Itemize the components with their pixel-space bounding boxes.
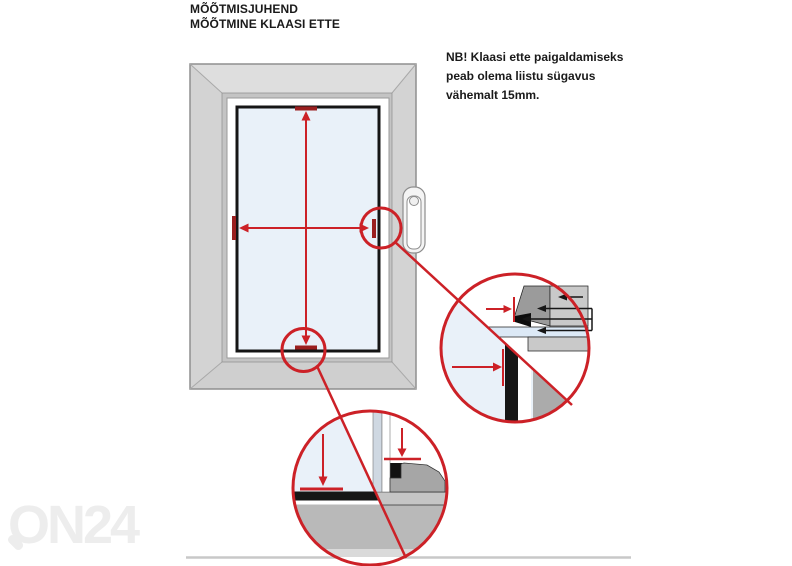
handle-pivot: [410, 197, 419, 206]
note-line-1: NB! Klaasi ette paigaldamiseks: [446, 48, 623, 67]
left-measure-tick: [232, 216, 236, 240]
title-line-1: MÕÕTMISJUHEND: [190, 2, 340, 17]
window-frame: [190, 64, 416, 389]
page-title: MÕÕTMISJUHEND MÕÕTMINE KLAASI ETTE: [190, 2, 340, 32]
frame-face-top: [190, 64, 416, 93]
sill-light-strip: [292, 549, 450, 557]
measurement-diagram: [0, 0, 792, 566]
seal-block: [390, 463, 402, 478]
glass-pane-outer: [373, 410, 382, 492]
note-line-2: peab olema liistu sügavus: [446, 67, 623, 86]
detail-view-bottom: [288, 366, 450, 565]
title-line-2: MÕÕTMINE KLAASI ETTE: [190, 17, 340, 32]
glass-pane-section: [488, 327, 588, 337]
bottom-measure-tick: [295, 346, 317, 350]
note-line-3: vähemalt 15mm.: [446, 86, 623, 105]
glass-pane-inner: [382, 410, 390, 492]
frame-face-left: [190, 64, 222, 389]
sash-section: [528, 337, 588, 351]
note-text: NB! Klaasi ette paigaldamiseks peab olem…: [446, 48, 623, 105]
right-measure-tick: [372, 219, 376, 238]
instruction-image: ON24 MÕÕTMISJUHEND MÕÕTMINE KLAASI ETTE …: [0, 0, 792, 566]
window-handle: [403, 187, 425, 253]
frame-face-bottom: [190, 362, 416, 389]
top-measure-tick: [295, 107, 317, 111]
